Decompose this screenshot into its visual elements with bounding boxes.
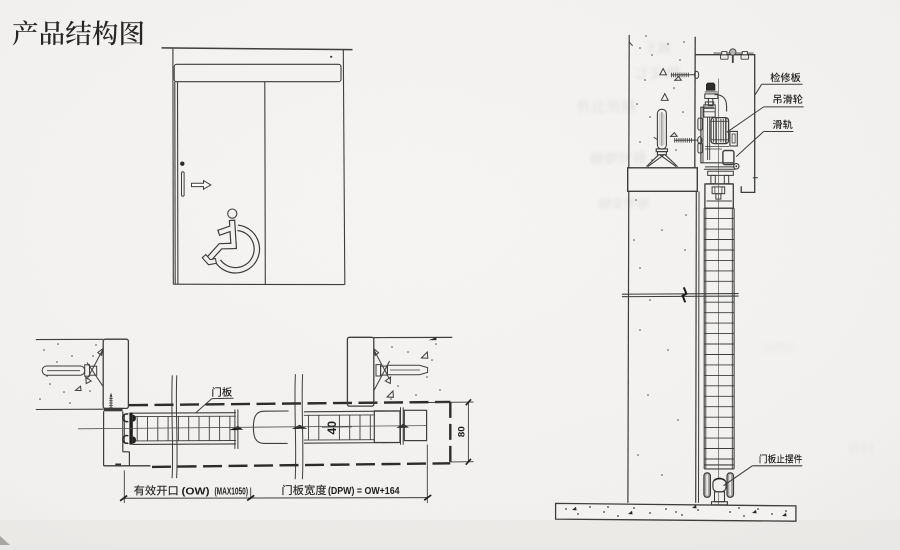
svg-text:80: 80 xyxy=(457,426,468,437)
svg-text:40: 40 xyxy=(327,421,339,435)
svg-text:(OW): (OW) xyxy=(182,486,210,497)
svg-text:(DPW) = OW+164: (DPW) = OW+164 xyxy=(328,486,400,497)
svg-text:(MAX1050): (MAX1050) xyxy=(215,486,249,497)
